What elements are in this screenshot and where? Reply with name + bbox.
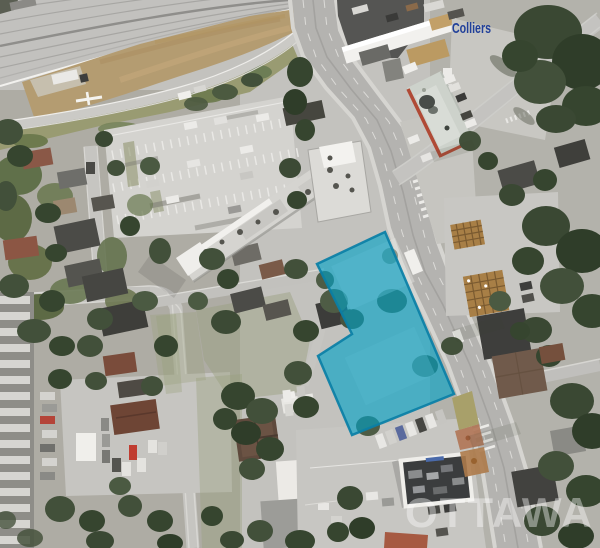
svg-text:OTTAWA: OTTAWA — [405, 489, 594, 536]
svg-text:Colliers: Colliers — [452, 20, 491, 37]
